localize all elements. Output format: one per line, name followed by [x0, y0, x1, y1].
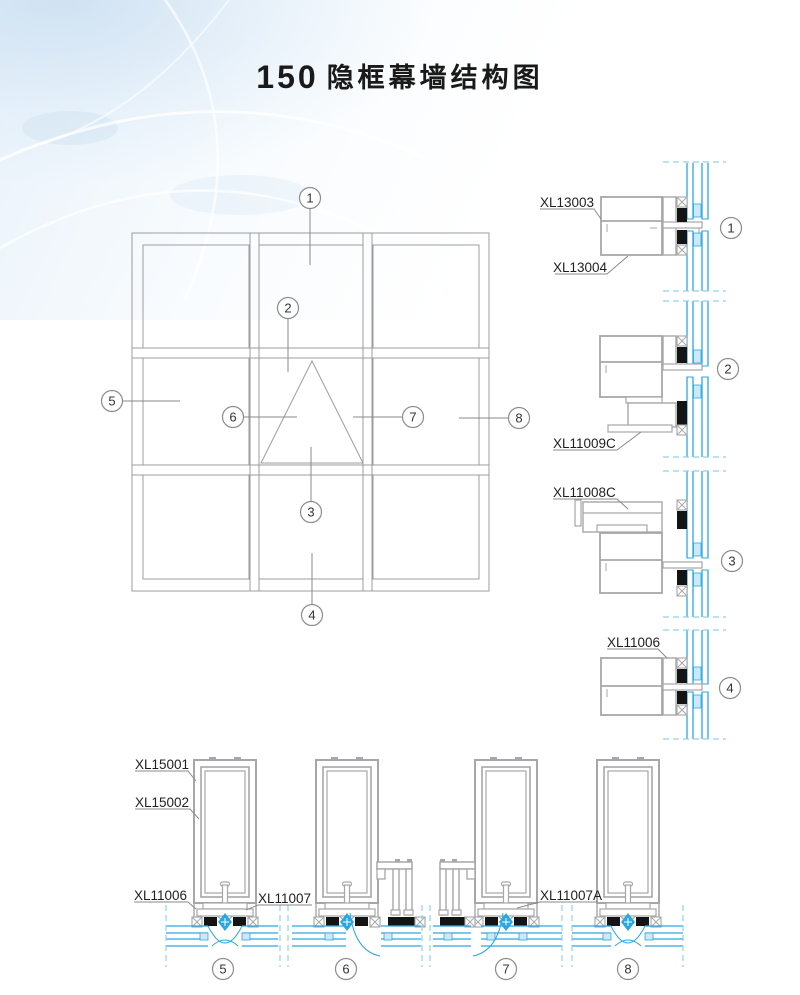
callout-number-7: 7	[409, 410, 416, 425]
section-callout-number-3: 3	[728, 554, 735, 569]
callout-number-2: 2	[284, 301, 291, 316]
elevation-callout-5: 5	[102, 391, 123, 412]
part-label-xl11006-bottom: XL11006	[134, 888, 187, 903]
horizontal-sections: 5 6 7 8 XL15001 XL15002 XL11006 XL11007 …	[134, 757, 683, 980]
section-callout-number-5: 5	[219, 962, 226, 977]
section-detail-1: 1 XL13003 XL13004	[540, 195, 742, 275]
elevation-callout-4: 4	[302, 605, 323, 626]
section-callout-number-7: 7	[502, 962, 509, 977]
part-label-xl15002: XL15002	[135, 795, 189, 810]
elevation-callout-6: 6	[223, 407, 244, 428]
section-callout-8: 8	[618, 959, 639, 980]
section-callout-number-1: 1	[727, 221, 734, 236]
elevation-grid	[132, 233, 489, 591]
glass-spacers	[694, 204, 702, 708]
part-label-xl13003: XL13003	[540, 195, 594, 210]
part-label-xl11009c: XL11009C	[553, 436, 616, 451]
elevation-callout-8: 8	[509, 408, 530, 429]
part-label-xl13004: XL13004	[553, 260, 608, 275]
section-callout-number-8: 8	[624, 962, 631, 977]
mullion-section-6	[314, 757, 380, 931]
elevation-callout-3: 3	[301, 502, 322, 523]
opening-triangle	[261, 361, 363, 463]
callout-number-3: 3	[307, 505, 314, 520]
section-callout-2: 2	[718, 359, 739, 380]
elevation-callout-1: 1	[300, 188, 321, 209]
elevation-callout-2: 2	[278, 298, 299, 319]
vertical-sections: 1 XL13003 XL13004 2 XL11009C	[540, 162, 743, 739]
callout-number-1: 1	[306, 191, 313, 206]
part-label-xl11008c: XL11008C	[553, 485, 616, 500]
section-detail-2: 2 XL11009C	[553, 336, 739, 451]
section-callout-7: 7	[496, 959, 517, 980]
sash-profile-7	[439, 859, 475, 915]
section-callout-6: 6	[336, 959, 357, 980]
callout-number-6: 6	[229, 410, 236, 425]
section-callout-5: 5	[213, 959, 234, 980]
part-label-xl11007a: XL11007A	[540, 888, 602, 903]
callout-number-5: 5	[108, 394, 115, 409]
part-label-xl11006-right: XL11006	[607, 635, 660, 650]
part-label-xl11007: XL11007	[258, 891, 311, 906]
section-callout-number-2: 2	[724, 362, 731, 377]
elevation-drawing: 1 2 3 4 5 6 7 8	[102, 188, 530, 626]
section-callout-3: 3	[722, 551, 743, 572]
section-callout-4: 4	[720, 678, 741, 699]
elevation-callout-7: 7	[403, 407, 424, 428]
section-detail-4: 4 XL11006	[601, 635, 741, 715]
mullion-section-8	[595, 757, 661, 931]
callout-number-8: 8	[515, 411, 522, 426]
page: { "title": { "number": "150", "text": "隐…	[0, 0, 800, 995]
sash-profile-6	[377, 859, 413, 915]
callout-number-4: 4	[308, 608, 315, 623]
mullion-section-5	[192, 757, 258, 931]
section-callout-number-4: 4	[726, 681, 733, 696]
section-callout-number-6: 6	[342, 962, 349, 977]
section-detail-3: 3 XL11008C	[553, 485, 743, 596]
part-label-xl15001: XL15001	[135, 757, 189, 772]
drawing-canvas: 1 2 3 4 5 6 7 8	[0, 0, 800, 995]
section-callout-1: 1	[721, 218, 742, 239]
